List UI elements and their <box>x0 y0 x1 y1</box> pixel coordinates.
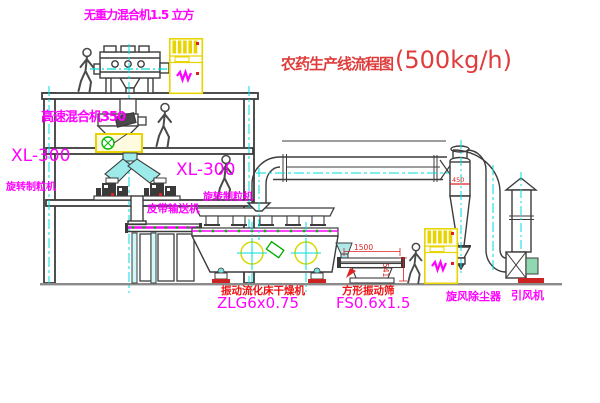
label-cyclone: 旋风除尘器 <box>446 291 501 302</box>
induced-draft-fan <box>506 252 544 283</box>
control-cabinet-2 <box>425 229 458 283</box>
person-figure-floor2 <box>157 104 172 148</box>
control-cabinet-1 <box>170 39 203 94</box>
title-text: 农药生产线流程图 <box>281 46 393 74</box>
label-high-speed-mixer: 高速混合机350 <box>41 111 125 124</box>
exhaust-duct <box>248 141 454 211</box>
label-belt-conveyor: 皮带输送机 <box>147 204 200 215</box>
belt-conveyor <box>125 223 202 283</box>
label-sieve-model: FS0.6x1.5 <box>336 296 410 311</box>
diagram-title: 农药生产线流程图 (500kg/h) <box>281 46 512 74</box>
granulator-discharge-pipe <box>128 196 146 225</box>
dimension-sieve-width: 1500 <box>354 244 373 252</box>
person-figure-roof <box>79 49 94 93</box>
label-fan: 引风机 <box>511 290 544 301</box>
fan-base <box>518 278 544 283</box>
dimension-sieve-height: 541 <box>382 263 390 277</box>
process-flow-diagram: 农药生产线流程图 (500kg/h) 无重力混合机1.5 立方 高速混合机350… <box>0 0 600 403</box>
building-roof-slab <box>42 93 258 99</box>
person-figure-ground <box>408 243 421 283</box>
rotary-granulator-left <box>94 178 132 200</box>
label-gravity-mixer: 无重力混合机1.5 立方 <box>84 9 193 21</box>
label-granulator-right-name: 旋转制粒机 <box>203 193 253 203</box>
high-speed-mixer-drive-box <box>96 134 142 152</box>
dimension-cyclone: 450 <box>452 177 464 184</box>
label-dryer-model: ZLG6x0.75 <box>217 296 299 311</box>
label-granulator-right-model: XL-300 <box>176 162 235 179</box>
label-granulator-left-name: 旋转制粒机 <box>6 183 56 193</box>
fluid-bed-dryer <box>192 208 352 292</box>
label-granulator-left-model: XL-300 <box>11 148 70 165</box>
title-capacity: (500kg/h) <box>395 46 512 74</box>
building-floor2-slab <box>46 148 253 154</box>
